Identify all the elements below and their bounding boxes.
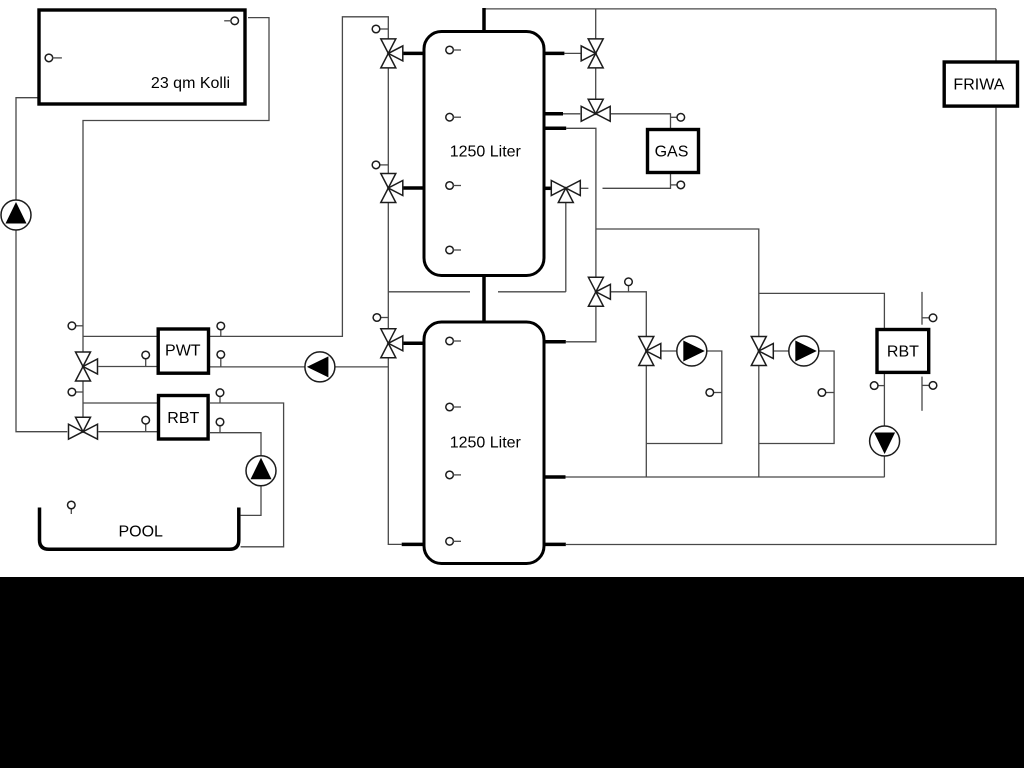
svg-text:1250 Liter: 1250 Liter [450,434,522,451]
svg-text:1250 Liter: 1250 Liter [450,144,522,161]
svg-text:23 qm Kolli: 23 qm Kolli [151,75,230,92]
svg-text:POOL: POOL [118,523,163,540]
svg-text:FRIWA: FRIWA [953,77,1004,94]
svg-text:RBT: RBT [167,410,199,427]
svg-text:GAS: GAS [655,143,689,160]
svg-text:RBT: RBT [887,344,919,361]
svg-text:PWT: PWT [165,343,201,360]
